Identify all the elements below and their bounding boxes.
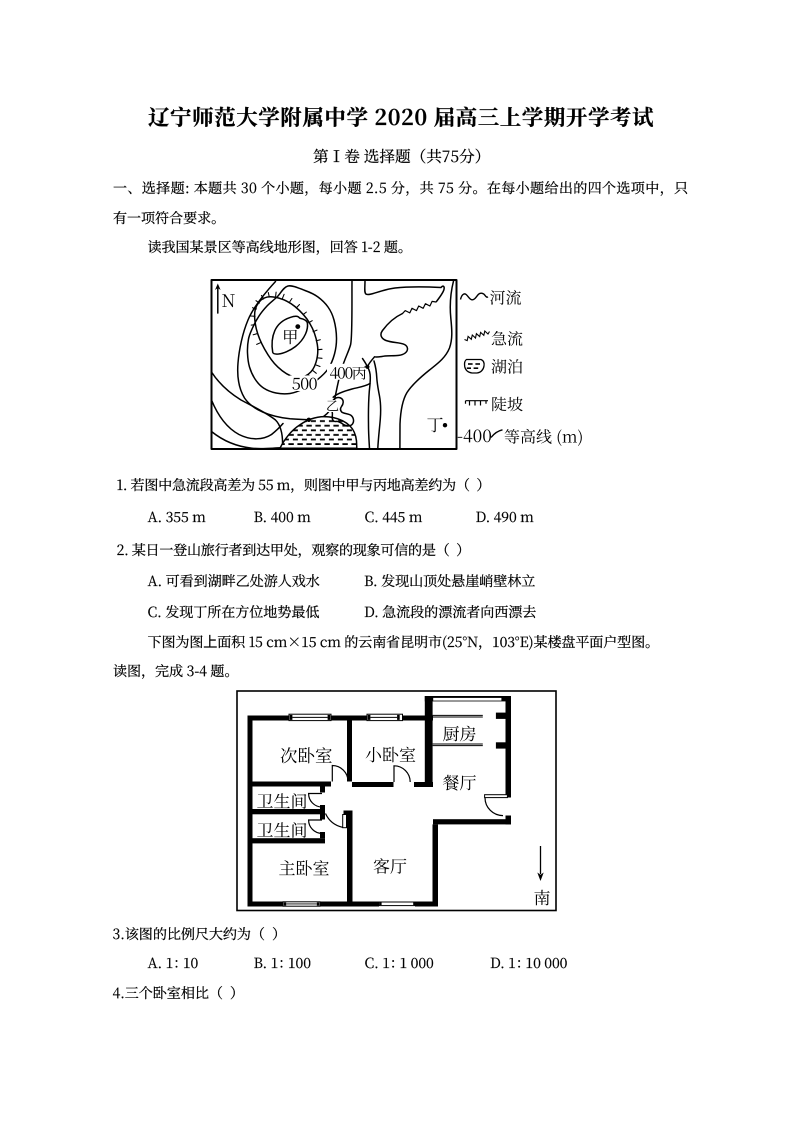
svg-text:甲: 甲 xyxy=(282,324,299,348)
svg-text:餐厅: 餐厅 xyxy=(443,769,477,794)
svg-text:南: 南 xyxy=(534,884,551,909)
svg-text:N: N xyxy=(222,288,236,313)
svg-text:厨房: 厨房 xyxy=(443,720,477,745)
svg-text:乙: 乙 xyxy=(326,396,339,415)
svg-text:-400: -400 xyxy=(457,423,492,448)
svg-text:客厅: 客厅 xyxy=(373,853,407,878)
svg-text:卫生间: 卫生间 xyxy=(257,788,308,813)
svg-text:主卧室: 主卧室 xyxy=(279,855,330,880)
svg-text:丁: 丁 xyxy=(427,411,444,436)
svg-text:500: 500 xyxy=(292,370,318,394)
svg-text:急流: 急流 xyxy=(491,327,523,350)
svg-text:400: 400 xyxy=(330,360,354,383)
svg-text:卫生间: 卫生间 xyxy=(257,817,308,842)
svg-text:丙: 丙 xyxy=(352,362,367,383)
svg-text:湖泊: 湖泊 xyxy=(491,355,523,378)
svg-text:次卧室: 次卧室 xyxy=(280,743,333,768)
svg-text:等高线 (m): 等高线 (m) xyxy=(504,425,583,448)
svg-text:河流: 河流 xyxy=(490,286,522,309)
svg-text:陡坡: 陡坡 xyxy=(491,392,523,415)
svg-text:小卧室: 小卧室 xyxy=(365,741,416,766)
